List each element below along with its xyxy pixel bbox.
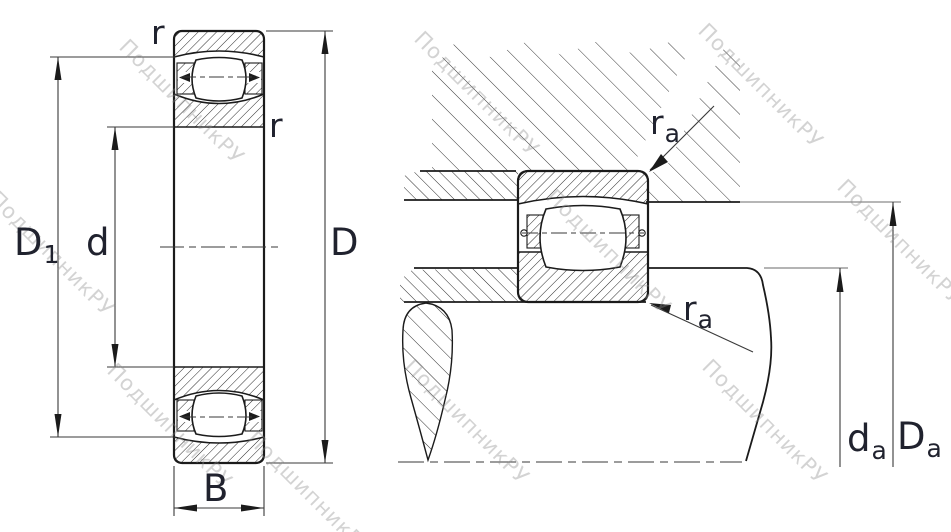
label-B: B	[203, 470, 229, 507]
shaft-shoulder-section	[400, 268, 518, 302]
label-d: d	[86, 224, 111, 261]
barrel-roller-bottom	[192, 393, 246, 437]
barrel-roller-top	[192, 58, 246, 102]
diagram-canvas: ПодшипникРУ ПодшипникРУ ПодшипникРУ Подш…	[0, 0, 951, 532]
arrow-da	[837, 268, 844, 292]
arrow-up	[112, 127, 119, 150]
housing-shoulder-section	[404, 171, 518, 200]
outer-ring-top-section	[174, 31, 264, 57]
label-da: da	[847, 420, 887, 457]
bearing-mounting-diagram: ПодшипникРУ ПодшипникРУ ПодшипникРУ Подш…	[0, 0, 951, 532]
arrow-down	[55, 414, 62, 437]
watermark-text: ПодшипникРУ	[697, 355, 832, 490]
arrow-up	[322, 31, 329, 54]
watermark-text: ПодшипникРУ	[832, 175, 951, 310]
watermark-text: ПодшипникРУ	[242, 427, 377, 532]
arrow-left	[174, 505, 197, 512]
label-Da: Da	[897, 418, 942, 455]
arrow-right	[241, 505, 264, 512]
outer-ring-section	[518, 171, 648, 204]
label-r-side: r	[269, 109, 284, 142]
label-ra-top: ra	[650, 106, 680, 139]
label-D: D	[330, 224, 360, 261]
arrow-up	[55, 57, 62, 80]
label-ra-bottom: ra	[683, 292, 713, 325]
label-r-top: r	[151, 16, 166, 49]
label-D1: D1	[14, 224, 59, 261]
arrow-down	[322, 440, 329, 463]
